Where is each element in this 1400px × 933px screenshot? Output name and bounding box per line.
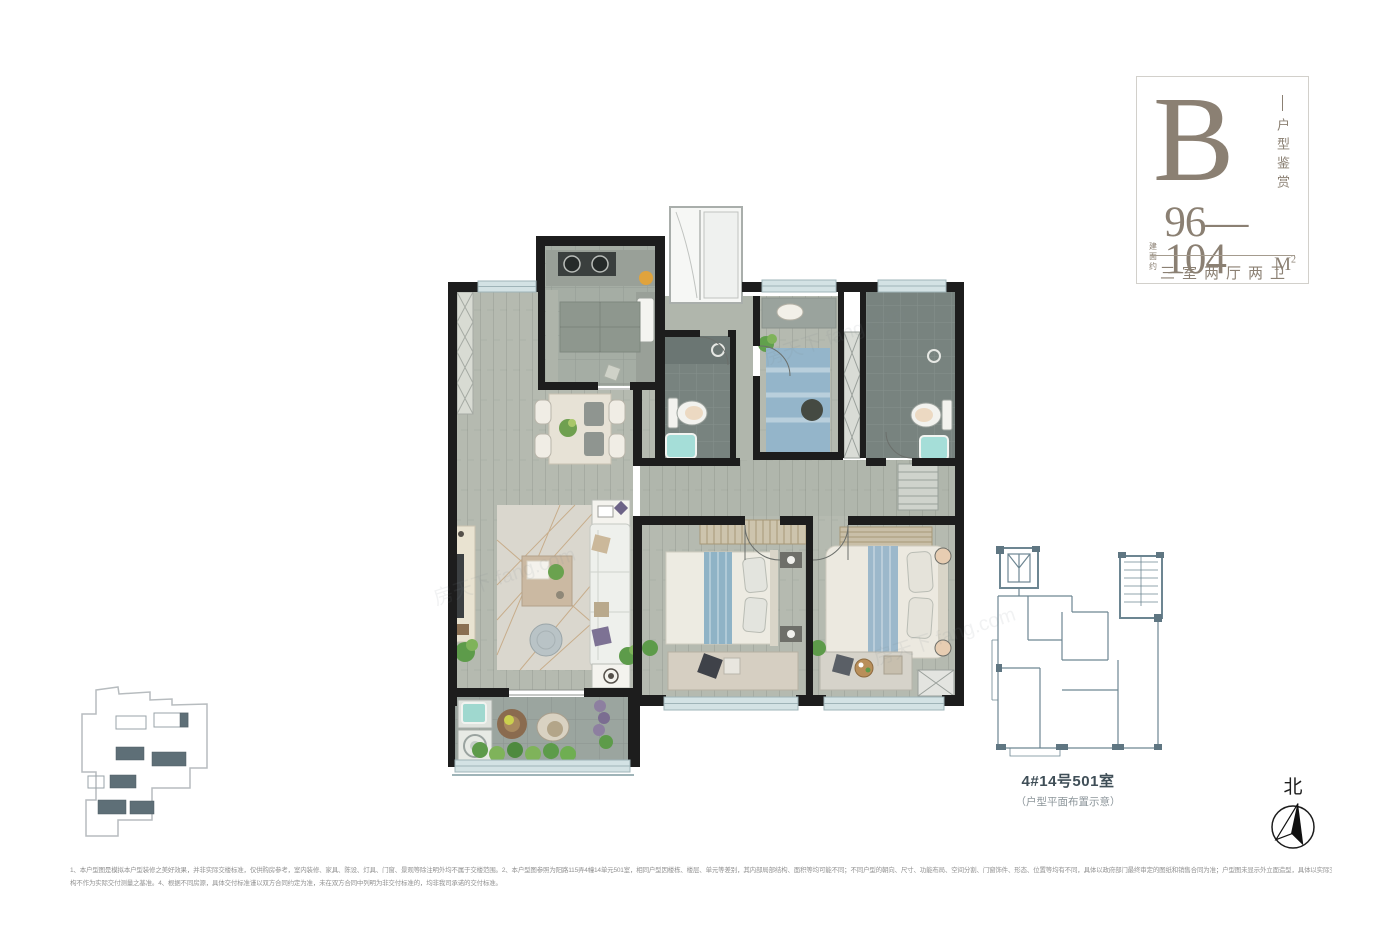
pillow-icon — [594, 602, 609, 617]
site-plan — [58, 662, 238, 857]
side-table — [855, 659, 873, 677]
sink-icon — [666, 434, 696, 458]
chair-icon — [584, 432, 604, 456]
chair-icon — [535, 434, 551, 458]
window — [762, 280, 836, 292]
cabinet-icon — [457, 292, 473, 414]
window — [878, 280, 946, 292]
tv-icon — [457, 554, 464, 618]
pillow-icon — [724, 658, 740, 674]
chair-icon — [535, 400, 551, 424]
pillow-icon — [884, 656, 902, 674]
north-label: 北 — [1258, 772, 1328, 799]
series-label-group: 户型鉴赏 — [1273, 95, 1292, 194]
info-card: B 户型鉴赏 建面 约 96—104 M2 三室两厅两卫 — [1136, 76, 1309, 284]
plant-icon — [548, 564, 564, 580]
chair-icon — [801, 399, 823, 421]
stove-burner-icon — [564, 256, 580, 272]
disclaimer: 1、本户型图是模拟本户型装修之美好效果，并非实际交楼标准，仅供购房参考，室内装修… — [70, 864, 1332, 890]
window — [452, 760, 634, 775]
master-bedroom-furniture — [810, 527, 954, 696]
chair-icon — [584, 402, 604, 426]
ottoman — [530, 624, 562, 656]
wall-piers — [996, 546, 1164, 750]
area-prefix-line1: 建面 — [1149, 242, 1162, 262]
lamp-icon — [935, 548, 951, 564]
plant-icon — [642, 640, 658, 656]
series-label: 户型鉴赏 — [1273, 118, 1292, 194]
window — [478, 281, 536, 292]
window — [824, 697, 944, 710]
floor-plan — [430, 195, 975, 785]
series-divider-line — [1282, 95, 1283, 111]
entry-door — [670, 207, 742, 303]
bedroom3-furniture — [758, 298, 836, 452]
key-plan — [985, 540, 1175, 762]
window — [664, 697, 798, 710]
layout-text: 三室两厅两卫 — [1137, 262, 1308, 283]
unit-number: 4#14号501室 — [985, 770, 1151, 791]
north-arrow-icon — [1258, 799, 1328, 855]
sink-icon — [920, 436, 948, 460]
hallway-cabinet — [898, 464, 938, 510]
unit-number-caption: （户型平面布置示意） — [985, 794, 1151, 809]
pillow-icon — [907, 597, 934, 639]
pillow-icon — [907, 551, 934, 593]
dining-set — [535, 394, 625, 464]
pillow-icon — [742, 557, 767, 593]
toilet-icon — [942, 400, 952, 430]
key-plan-label: 4#14号501室 （户型平面布置示意） — [985, 770, 1151, 809]
closet-strip — [844, 332, 860, 458]
type-letter: B — [1153, 79, 1234, 201]
pillow-icon — [743, 597, 768, 633]
chair-icon — [609, 400, 625, 424]
disclaimer-line1: 1、本户型图是模拟本户型装修之美好效果，并非实际交楼标准，仅供购房参考，室内装修… — [70, 864, 1332, 877]
fruit-bowl-icon — [639, 271, 653, 285]
stairs-icon — [1124, 556, 1158, 606]
lamp-icon — [935, 640, 951, 656]
chair-icon — [609, 434, 625, 458]
compass: 北 — [1258, 772, 1328, 860]
basin-icon — [777, 304, 803, 320]
stove-burner-icon — [592, 256, 608, 272]
pillow-icon — [592, 626, 612, 646]
disclaimer-line2: 构不作为实际交付测量之基准。4、根据不同房源，具体交付标准谨以双方合同约定为准，… — [70, 877, 1332, 890]
card-divider — [1150, 255, 1295, 256]
